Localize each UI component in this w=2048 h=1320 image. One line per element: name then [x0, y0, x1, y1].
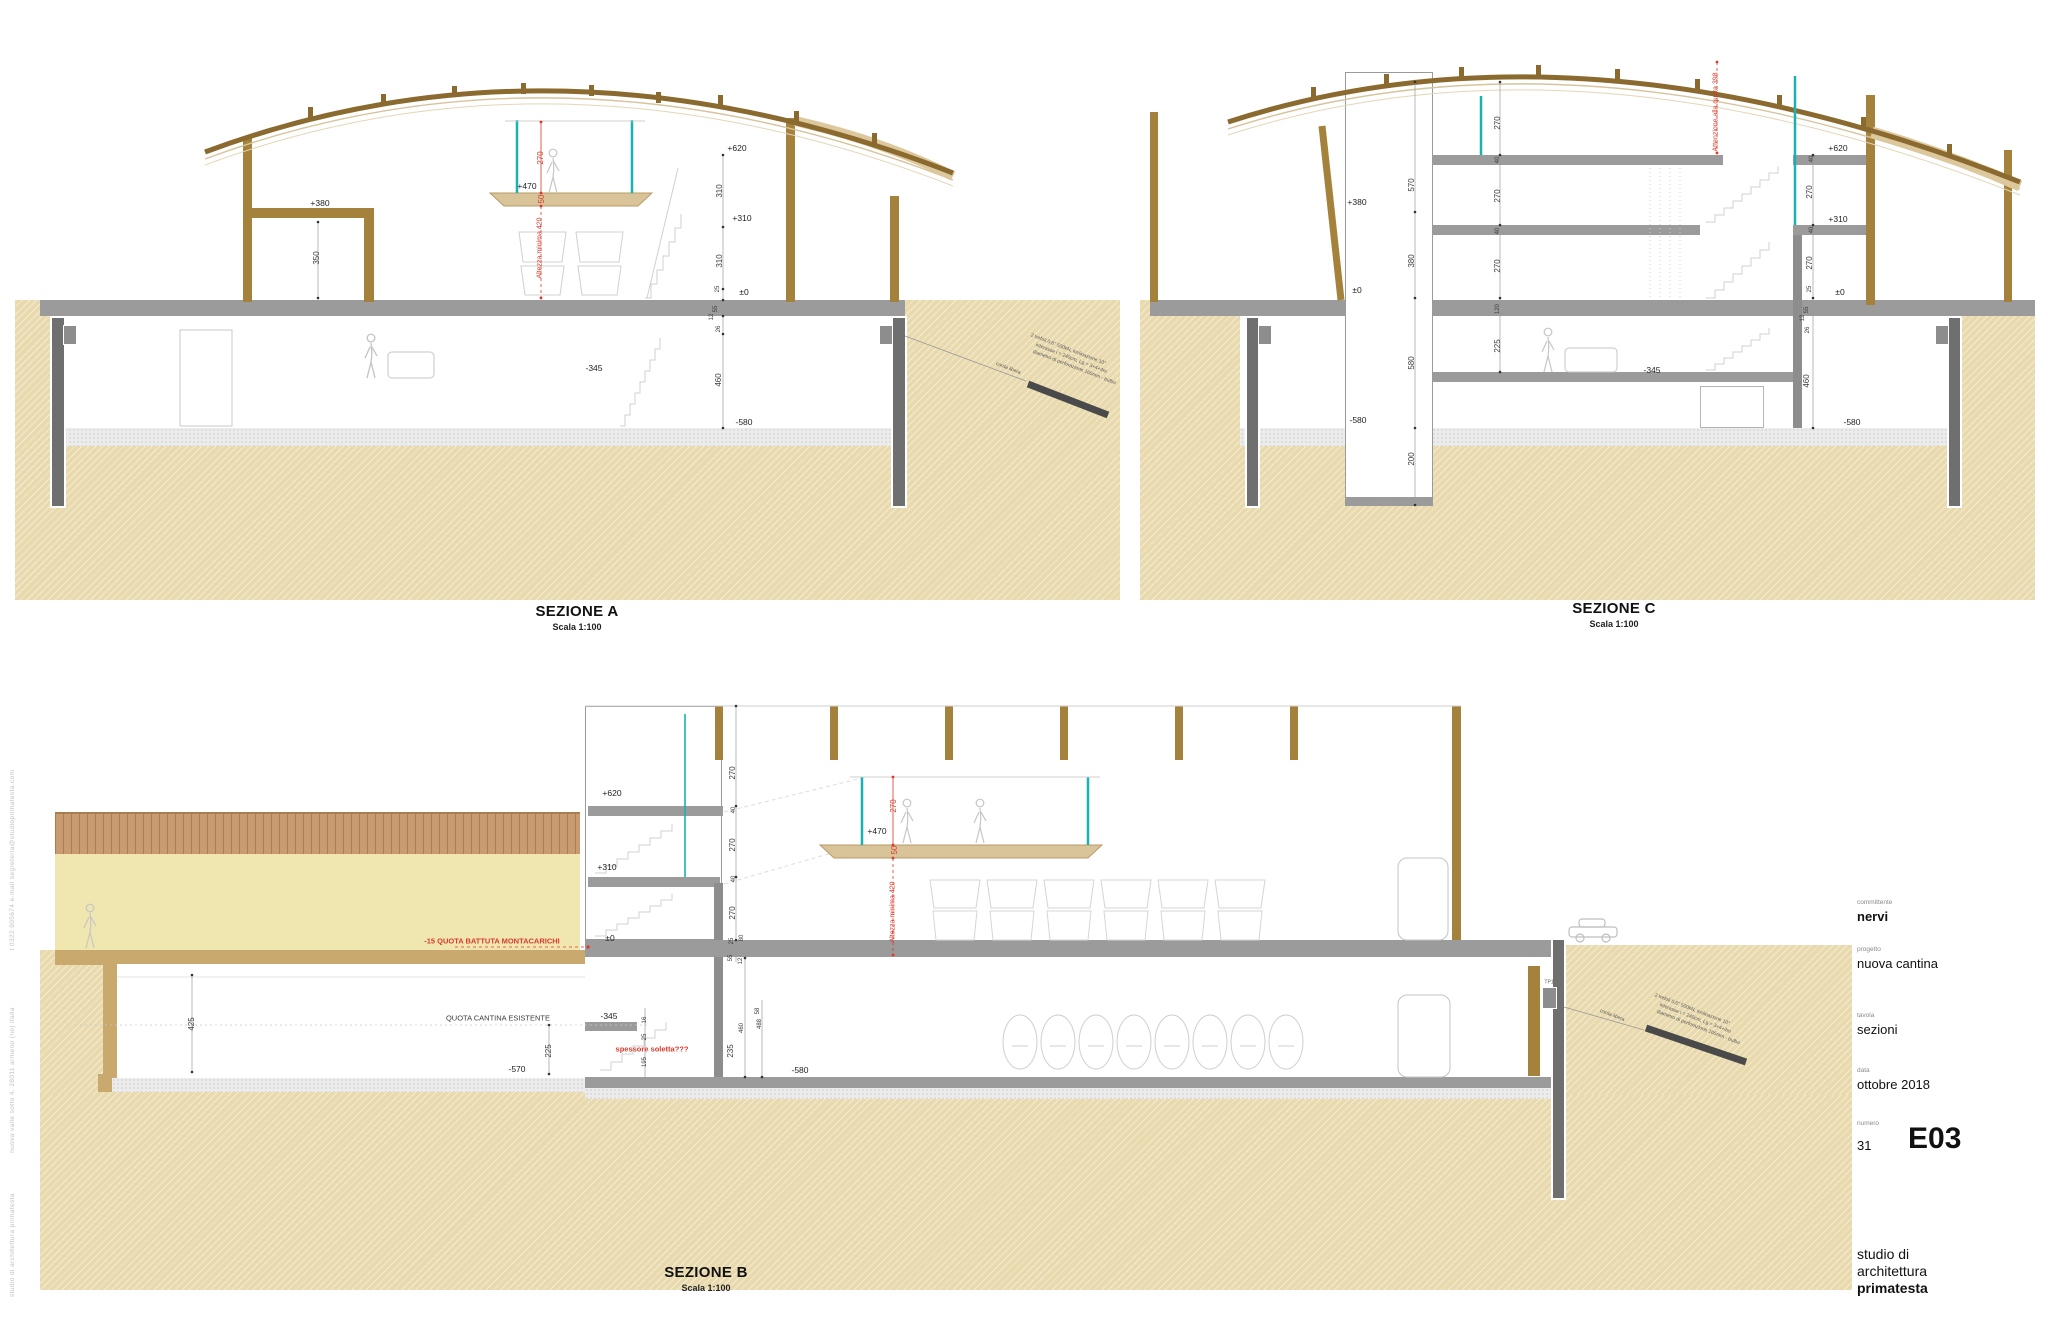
committente-value: nervi [1857, 909, 1888, 924]
section-a-interior [180, 168, 681, 426]
section-c-dim-chains [1414, 81, 1815, 507]
section-b-ground-anchor [1564, 1007, 1746, 1062]
section-a-title: SEZIONE A Scala 1:100 [536, 603, 619, 632]
section-b-furniture [930, 858, 1450, 1077]
data-value: ottobre 2018 [1857, 1077, 1930, 1092]
section-a-mezzanine [490, 120, 652, 299]
numero-label: numero [1857, 1120, 1879, 1127]
section-a-roof [205, 83, 953, 186]
section-a-scale-text: Scala 1:100 [536, 622, 619, 632]
tavola-value: sezioni [1857, 1022, 1897, 1037]
section-b-tower-stairs [595, 714, 685, 1070]
studio-line3: primatesta [1857, 1280, 1928, 1297]
section-c-title-text: SEZIONE C [1572, 600, 1656, 617]
section-b-left-annolines [75, 904, 650, 1077]
tavola-label: tavola [1857, 1012, 1874, 1019]
linework-overlay [0, 0, 2048, 1320]
data-label: data [1857, 1067, 1870, 1074]
sheet-code: E03 [1908, 1122, 1961, 1156]
section-c-title: SEZIONE C Scala 1:100 [1572, 600, 1656, 629]
drawing-sheet: SEZIONE A Scala 1:100 SEZIONE C Scala 1:… [0, 0, 2048, 1320]
progetto-value: nuova cantina [1857, 956, 1938, 971]
studio-line1: studio di [1857, 1246, 1909, 1263]
committente-label: committente [1857, 899, 1892, 906]
section-b-title-text: SEZIONE B [664, 1264, 748, 1281]
section-b-title: SEZIONE B Scala 1:100 [664, 1264, 748, 1293]
section-c-scale-text: Scala 1:100 [1572, 619, 1656, 629]
section-b-scale-text: Scala 1:100 [664, 1283, 748, 1293]
numero-value: 31 [1857, 1138, 1871, 1153]
section-b-dim-chains [735, 705, 764, 1079]
section-b-car [1569, 919, 1617, 942]
section-b-mezzanine [820, 776, 1102, 957]
section-c-roof [1228, 65, 2020, 300]
section-a-ground-anchor [905, 336, 1108, 415]
progetto-label: progetto [1857, 946, 1881, 953]
section-a-title-text: SEZIONE A [536, 603, 619, 620]
studio-line2: architettura [1857, 1263, 1927, 1280]
